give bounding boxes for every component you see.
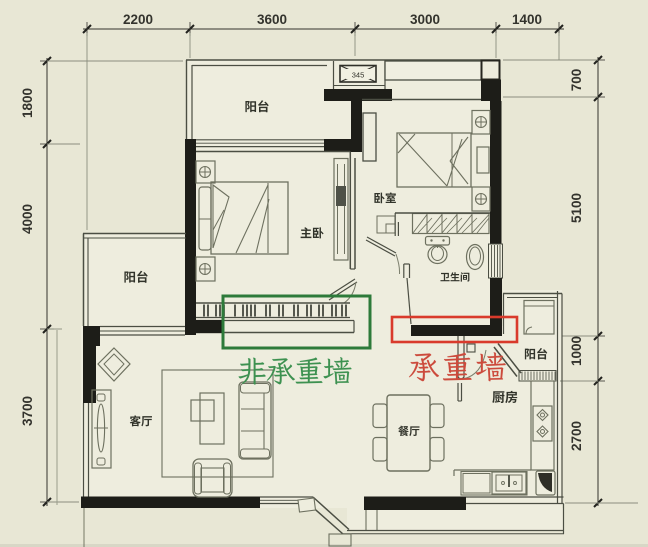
svg-text:5100: 5100: [569, 193, 584, 223]
svg-text:2200: 2200: [123, 12, 153, 27]
svg-text:4000: 4000: [20, 204, 35, 234]
svg-text:3600: 3600: [257, 12, 287, 27]
svg-text:1000: 1000: [569, 336, 584, 366]
svg-text:2700: 2700: [569, 421, 584, 451]
svg-text:3700: 3700: [20, 396, 35, 426]
svg-text:345: 345: [352, 71, 365, 80]
svg-text:1800: 1800: [20, 88, 35, 118]
svg-text:1400: 1400: [512, 12, 542, 27]
svg-text:700: 700: [569, 69, 584, 92]
svg-text:3000: 3000: [410, 12, 440, 27]
